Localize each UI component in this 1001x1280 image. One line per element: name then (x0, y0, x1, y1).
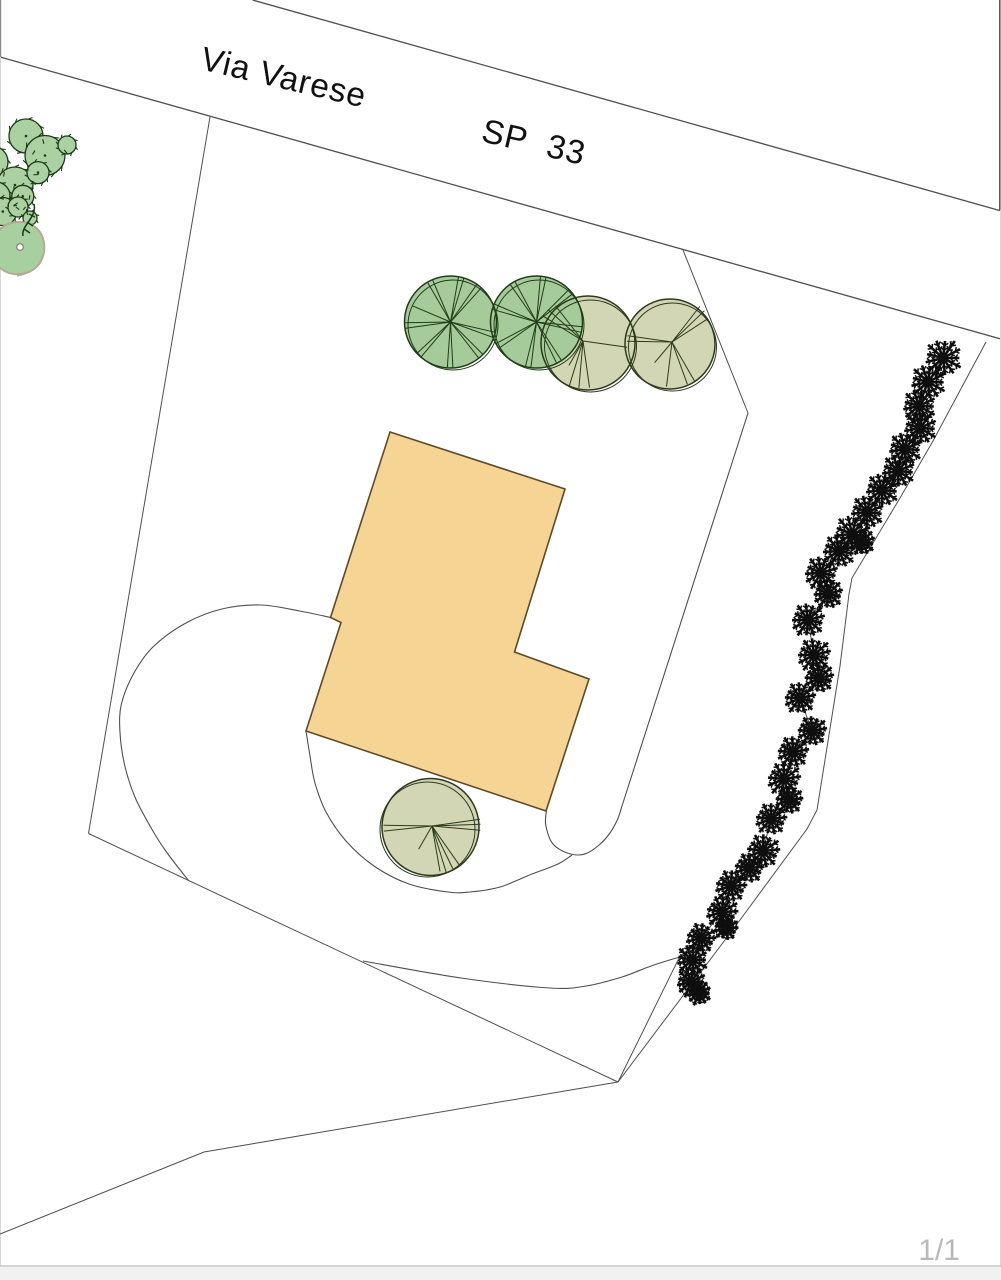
svg-text:1/1: 1/1 (918, 1234, 960, 1267)
